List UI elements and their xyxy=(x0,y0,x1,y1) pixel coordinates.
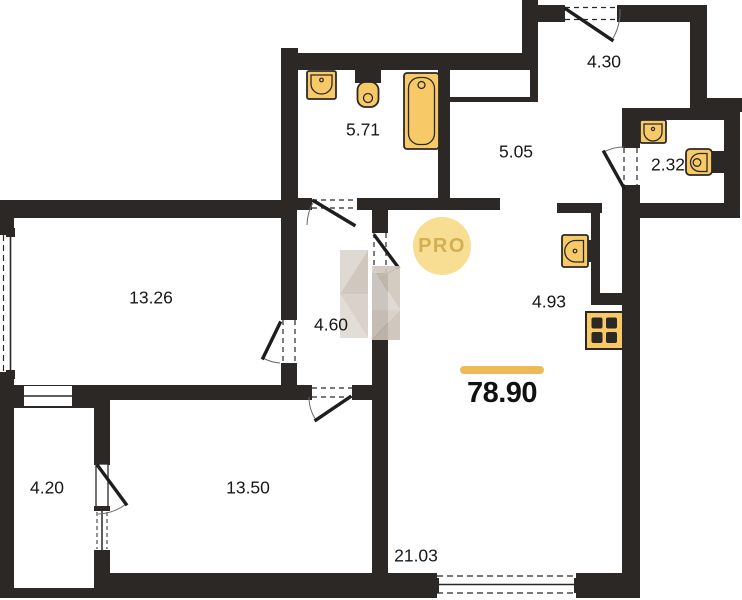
area-label-balcony: 4.20 xyxy=(30,478,64,499)
area-label-hallway: 4.60 xyxy=(314,315,348,336)
area-label-room-2: 13.50 xyxy=(226,478,270,499)
area-label-entry-hall: 4.30 xyxy=(587,52,621,73)
sink-icon xyxy=(307,71,336,99)
door-entry-hall xyxy=(566,9,612,40)
bathtub-icon xyxy=(404,73,439,149)
door-bathroom xyxy=(314,201,354,225)
watermark-logo-icon xyxy=(340,250,400,340)
total-area-block: 78.90 xyxy=(458,366,546,408)
pro-watermark-badge: PRO xyxy=(413,217,471,275)
floor-plan-drawing xyxy=(0,0,742,600)
area-label-wc: 2.32 xyxy=(651,155,685,176)
area-label-kitchen-zone: 4.93 xyxy=(532,292,566,313)
stove-icon xyxy=(586,312,623,349)
door-room-1 xyxy=(263,323,280,358)
toilet-icon xyxy=(355,70,381,107)
area-label-corridor: 5.05 xyxy=(499,142,533,163)
total-area-underline xyxy=(460,366,544,374)
total-area-value: 78.90 xyxy=(458,379,546,408)
wc-sink-icon xyxy=(640,120,666,143)
wc-toilet-icon xyxy=(686,149,724,175)
area-label-room-1: 13.26 xyxy=(129,288,173,309)
area-label-bathroom: 5.71 xyxy=(346,120,380,141)
floor-plan-viewer: PRO 4.30 5.71 5.05 2.32 13.26 4.60 4.93 … xyxy=(0,0,742,600)
door-wc xyxy=(604,152,624,188)
pro-badge-label: PRO xyxy=(418,235,466,258)
area-label-living-zone: 21.03 xyxy=(394,546,438,567)
kitchen-sink-icon xyxy=(562,235,588,267)
door-room-2 xyxy=(316,397,350,420)
